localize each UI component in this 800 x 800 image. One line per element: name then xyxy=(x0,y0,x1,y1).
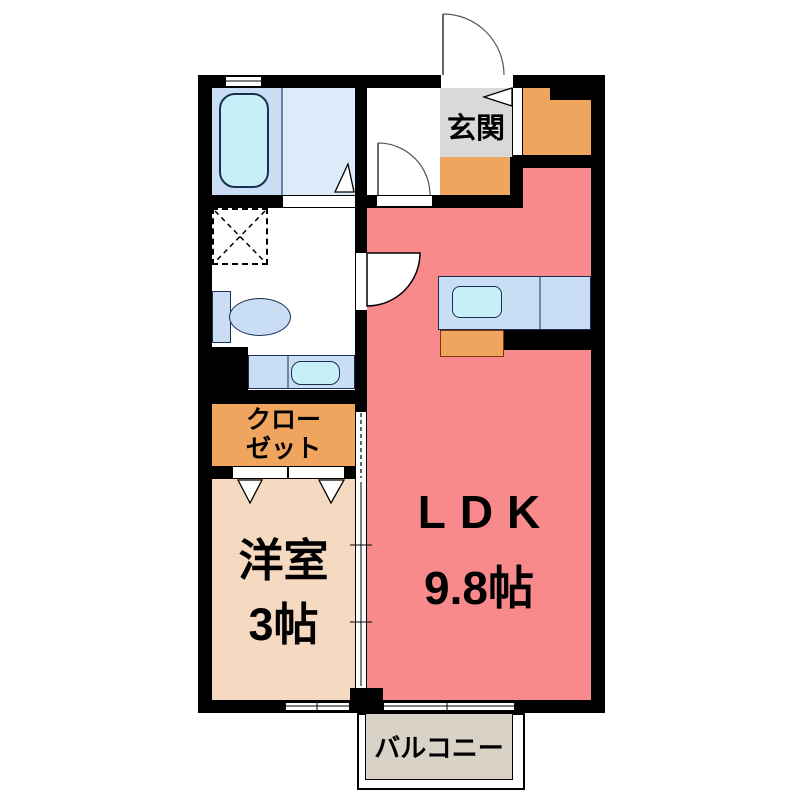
closet-label-line1: クロー xyxy=(246,406,321,435)
sliding-door xyxy=(355,479,367,688)
toilet-bowl xyxy=(229,298,291,336)
wall-bath-hall xyxy=(355,88,367,195)
western-room-name: 洋室 xyxy=(238,529,328,593)
washing-machine-pan xyxy=(212,208,268,265)
bathroom-door-opening xyxy=(283,196,355,207)
entrance-label-text: 玄関 xyxy=(447,105,505,147)
wall-bottom-junction xyxy=(350,688,383,713)
wall-basin-block xyxy=(212,347,248,390)
wall-notch xyxy=(550,88,591,100)
ldk-size: 9.8帖 xyxy=(424,550,534,626)
closet-label-line2: ゼット xyxy=(246,435,321,464)
wall-mid-horizontal xyxy=(212,195,523,208)
wall-left xyxy=(198,75,212,713)
wall-kitchen-block xyxy=(504,328,591,350)
hall-door-opening xyxy=(377,196,432,206)
balcony-label-text: バルコニー xyxy=(374,728,503,765)
washroom-door-opening xyxy=(356,253,367,310)
western-room-window xyxy=(285,702,350,711)
washbasin-sink xyxy=(291,361,340,385)
kitchen-lower-cabinet xyxy=(440,330,504,357)
room-ldk-upper xyxy=(523,168,591,208)
wall-step-right xyxy=(510,157,523,208)
entrance-side-strip xyxy=(512,88,523,157)
closet-door-panel-left xyxy=(232,466,288,479)
western-room-size: 3帖 xyxy=(248,593,318,657)
kitchen-sink xyxy=(452,286,502,318)
western-room-label: 洋室 3帖 xyxy=(212,528,355,658)
closet-label: クロー ゼット xyxy=(212,406,355,464)
ldk-label: LDK 9.8帖 xyxy=(367,474,591,626)
entrance-label: 玄関 xyxy=(440,102,512,150)
closet-door-panel-right xyxy=(288,466,345,479)
room-bathroom xyxy=(282,88,355,195)
entrance-door-opening xyxy=(441,75,513,88)
ldk-name: LDK xyxy=(404,474,555,550)
bathroom-window xyxy=(225,76,262,87)
bathtub xyxy=(219,93,269,188)
wall-storage-bottom xyxy=(512,155,591,168)
ldk-balcony-window xyxy=(383,702,515,711)
wall-right xyxy=(591,75,605,713)
entrance-hall xyxy=(367,88,440,195)
entrance-door-arc xyxy=(443,14,504,75)
wall-washroom-bottom xyxy=(212,390,355,404)
entrance-step xyxy=(440,157,510,195)
floor-plan: 玄関 クロー ゼット 洋室 3帖 LDK 9.8帖 バルコニー xyxy=(0,0,800,800)
wall-washroom-ldk xyxy=(355,208,367,412)
closet-side-panel xyxy=(355,412,367,479)
balcony-label: バルコニー xyxy=(365,713,513,780)
